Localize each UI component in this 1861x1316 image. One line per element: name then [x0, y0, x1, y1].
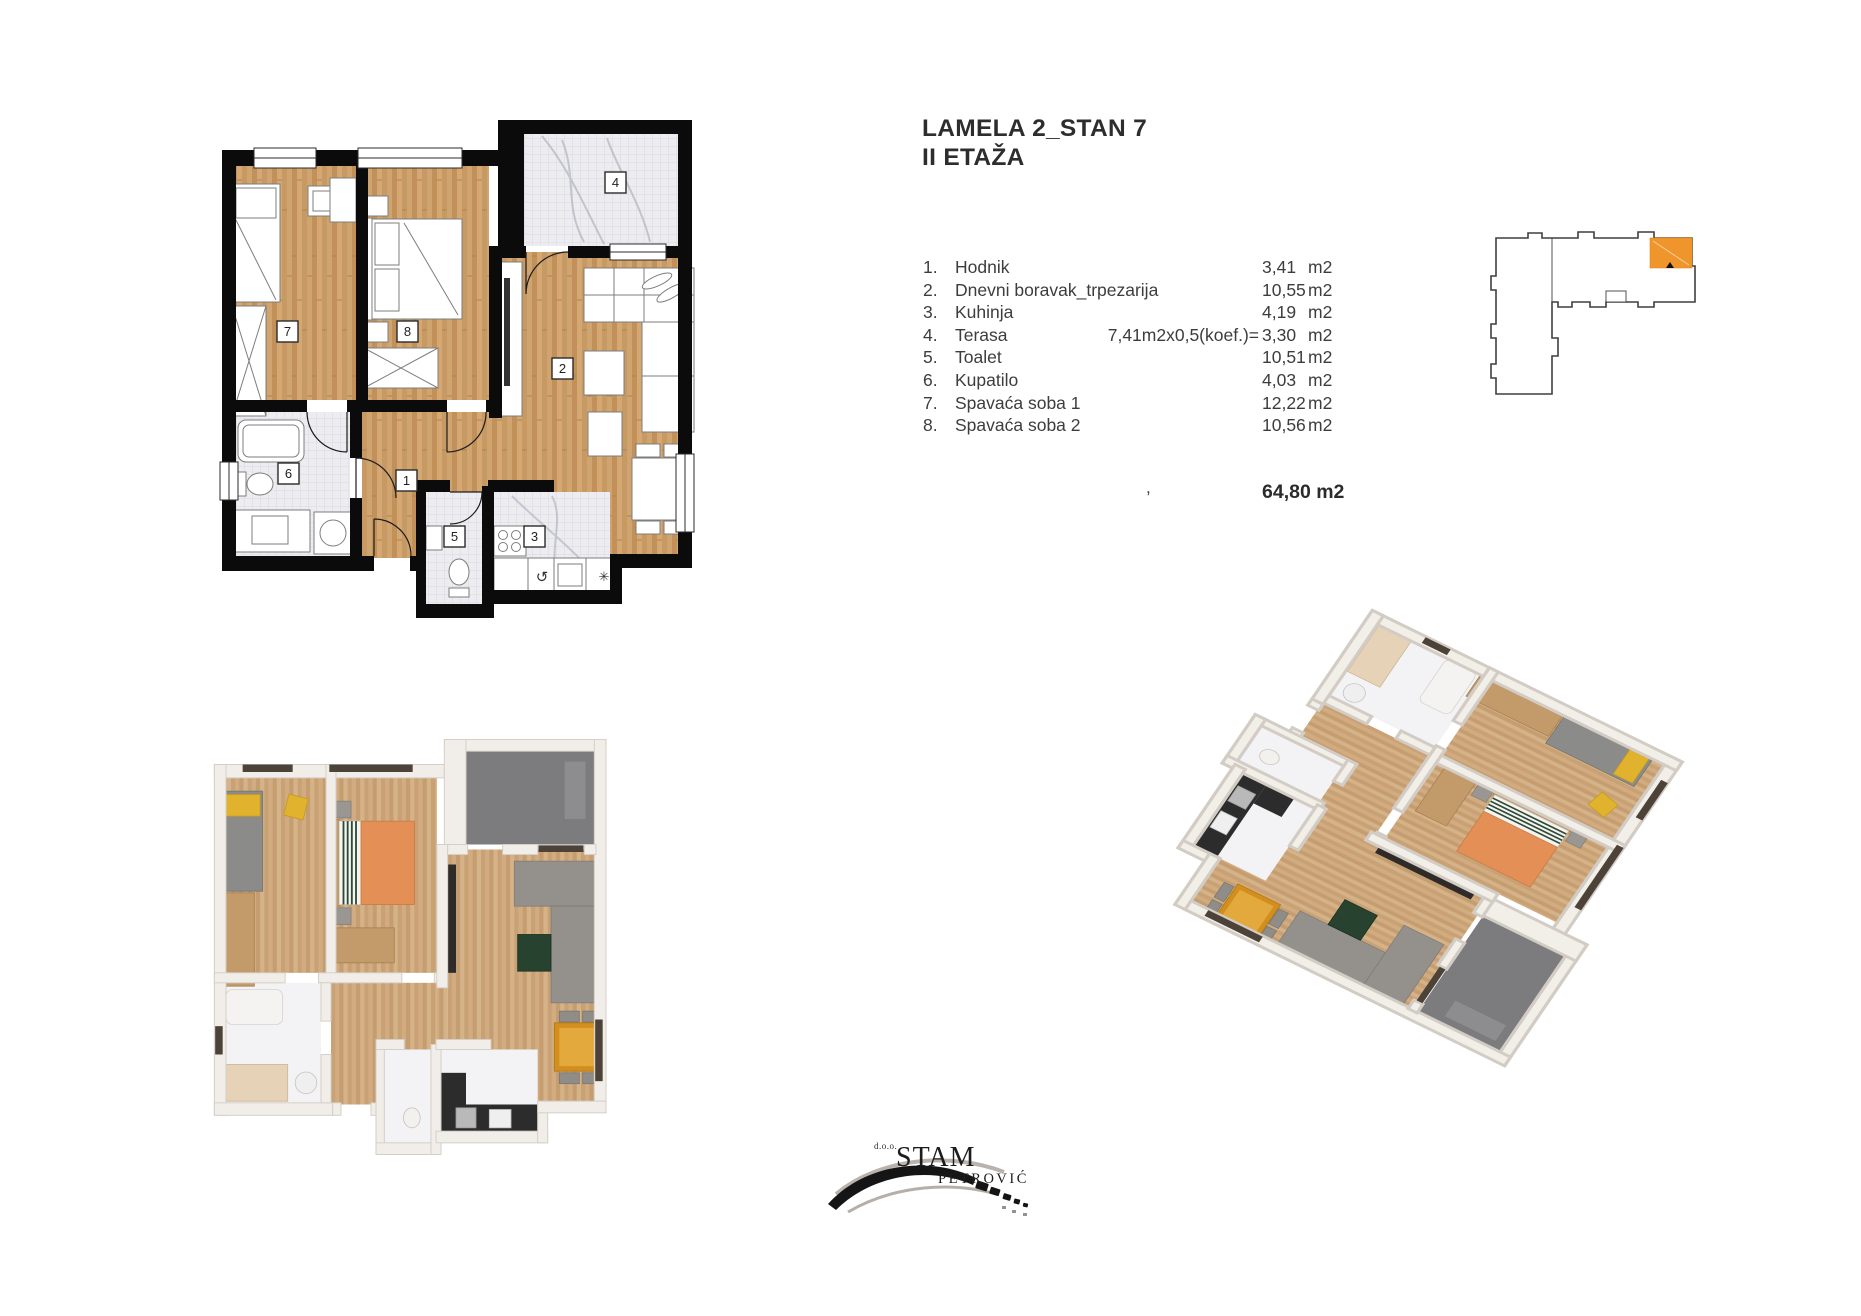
room-unit: m2 [1308, 414, 1332, 437]
svg-text:5: 5 [451, 529, 458, 544]
room-area: 4,03 [1262, 369, 1296, 392]
room-label-3: 3 [524, 526, 545, 547]
room-unit: m2 [1308, 369, 1332, 392]
swoosh-dashes-gray [1002, 1206, 1027, 1216]
svg-text:4: 4 [612, 175, 619, 190]
room-label-8: 8 [397, 321, 418, 342]
room-area: 3,30 [1262, 324, 1296, 347]
room-name: Kuhinja [955, 301, 1013, 324]
room-area: 3,41 [1262, 256, 1296, 279]
room-name: Spavaća soba 1 [955, 392, 1081, 415]
logo-name: STAM [896, 1142, 976, 1173]
room-name: Spavaća soba 2 [955, 414, 1081, 437]
room-name: Terasa [955, 324, 1008, 347]
room-name: Toalet [955, 346, 1002, 369]
room-area: 4,19 [1262, 301, 1296, 324]
swoosh-lower-gray [848, 1187, 996, 1212]
room-unit: m2 [1308, 256, 1332, 279]
room-number: 1. [923, 256, 938, 279]
freezer-icon: ✳ [599, 569, 610, 584]
room-area: 10,56 [1262, 414, 1306, 437]
svg-text:7: 7 [284, 324, 291, 339]
room-unit: m2 [1308, 392, 1332, 415]
building-locator-map [1488, 226, 1698, 398]
room-area: 10,51 [1262, 346, 1306, 369]
room-area: 12,22 [1262, 392, 1306, 415]
room-number: 4. [923, 324, 938, 347]
room-label-5: 5 [444, 526, 465, 547]
room-number: 5. [923, 346, 938, 369]
room-name: Hodnik [955, 256, 1009, 279]
core-notch [1606, 291, 1626, 302]
render-3d-isometric [1035, 535, 1735, 1185]
room-row: 4.Terasa7,41m2x0,5(koef.)=3,30m2 [923, 324, 1353, 347]
floorplan-2d: 7 8 4 2 1 6 5 3 ↺ ✳ [212, 106, 812, 626]
room-row: 8.Spavaća soba 210,56m2 [923, 414, 1353, 437]
room-name: Dnevni boravak_trpezarija [955, 279, 1158, 302]
company-logo: d.o.o. STAM PETROVIĆ [826, 1132, 1036, 1227]
room-row: 7.Spavaća soba 112,22m2 [923, 392, 1353, 415]
page-title: LAMELA 2_STAN 7 [922, 114, 1147, 143]
room-label-2: 2 [552, 358, 573, 379]
room-row: 1.Hodnik3,41m2 [923, 256, 1353, 279]
room-number: 3. [923, 301, 938, 324]
svg-text:6: 6 [285, 466, 292, 481]
brochure-sheet: 7 8 4 2 1 6 5 3 ↺ ✳ LAMELA 2_STAN 7 II E… [0, 0, 1861, 1316]
room-unit: m2 [1308, 279, 1332, 302]
render-3d-topdown [206, 687, 706, 1202]
iso-plan-group [1138, 593, 1704, 1065]
logo-prefix: d.o.o. [874, 1141, 897, 1151]
page-subtitle: II ETAŽA [922, 143, 1147, 172]
dishwasher-icon: ↺ [536, 569, 549, 586]
logo-surname: PETROVIĆ [938, 1170, 1029, 1187]
svg-text:8: 8 [404, 324, 411, 339]
total-comma: , [1146, 478, 1151, 498]
room-number: 8. [923, 414, 938, 437]
room-koef-note: 7,41m2x0,5(koef.)= [1099, 324, 1259, 347]
room-row: 5.Toalet10,51m2 [923, 346, 1353, 369]
room-name: Kupatilo [955, 369, 1018, 392]
room-row: 2.Dnevni boravak_trpezarija10,55m2 [923, 279, 1353, 302]
room-row: 6.Kupatilo4,03m2 [923, 369, 1353, 392]
room-unit: m2 [1308, 301, 1332, 324]
svg-text:3: 3 [531, 529, 538, 544]
room-area: 10,55 [1262, 279, 1306, 302]
room-number: 7. [923, 392, 938, 415]
room-label-6: 6 [278, 463, 299, 484]
room-area-list: 1.Hodnik3,41m2 2.Dnevni boravak_trpezari… [923, 256, 1353, 437]
room-label-7: 7 [277, 321, 298, 342]
room-number: 6. [923, 369, 938, 392]
svg-text:2: 2 [559, 361, 566, 376]
room-label-1: 1 [396, 470, 417, 491]
total-area: 64,80 m2 [1262, 481, 1344, 504]
svg-text:1: 1 [403, 473, 410, 488]
room-label-4: 4 [605, 172, 626, 193]
room-number: 2. [923, 279, 938, 302]
room-row: 3.Kuhinja4,19m2 [923, 301, 1353, 324]
room-unit: m2 [1308, 346, 1332, 369]
room-unit: m2 [1308, 324, 1332, 347]
title-block: LAMELA 2_STAN 7 II ETAŽA [922, 114, 1147, 172]
